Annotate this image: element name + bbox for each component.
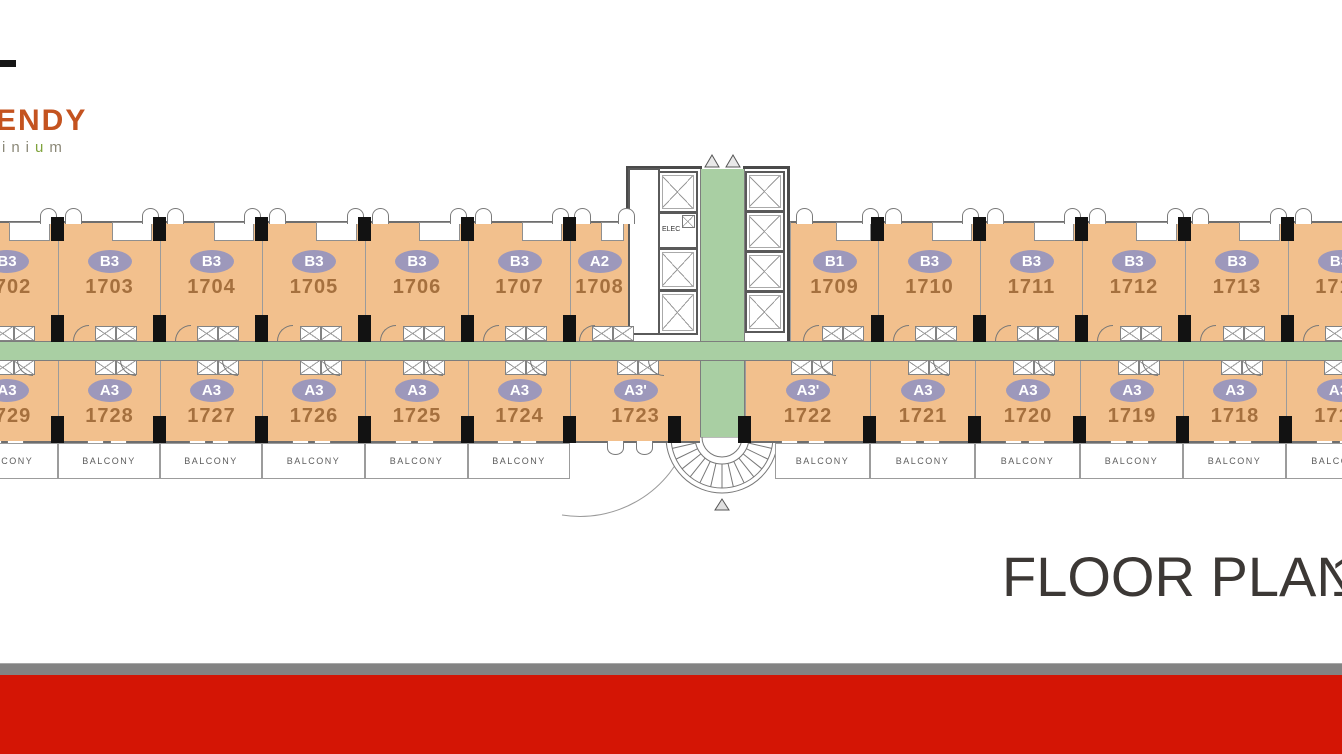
balcony-door-icon xyxy=(607,441,624,455)
shaft-pair xyxy=(1325,326,1342,341)
shaft-icon xyxy=(682,215,695,228)
window-notch-icon xyxy=(1136,222,1177,241)
balcony-cell: BALCONY xyxy=(365,443,468,479)
unit-number: 1706 xyxy=(366,276,468,299)
column-marker xyxy=(1176,416,1189,443)
shaft-icon xyxy=(791,360,812,375)
door-arc-icon xyxy=(372,208,389,224)
balcony-cell: BALCONY xyxy=(262,443,365,479)
door-arc-icon xyxy=(803,325,819,341)
unit-type-badge: A3 xyxy=(292,379,336,402)
unit-1702: B31702 xyxy=(0,221,58,341)
door-arc-icon xyxy=(618,208,635,224)
shaft-icon xyxy=(526,326,547,341)
unit-type-badge: B3 xyxy=(190,250,234,273)
balcony-label: BALCONY xyxy=(1208,456,1262,466)
door-arc-icon xyxy=(1200,325,1216,341)
unit-number: 1708 xyxy=(571,276,628,299)
window-notch-icon xyxy=(1239,222,1280,241)
shaft-icon xyxy=(0,360,14,375)
column-marker xyxy=(1075,217,1088,241)
footer-red-bar xyxy=(0,675,1342,754)
unit-number: 1724 xyxy=(469,405,570,428)
door-arc-icon xyxy=(65,208,82,224)
unit-type-badge: A3' xyxy=(614,379,658,402)
shaft-icon xyxy=(0,326,14,341)
elevator-icon xyxy=(658,171,698,213)
shaft-pair xyxy=(1324,360,1342,375)
shaft-icon xyxy=(95,326,116,341)
elevator-icon xyxy=(658,290,698,335)
shaft-pair xyxy=(915,326,957,341)
balcony-label: BALCONY xyxy=(1001,456,1055,466)
unit-type-badge: B3 xyxy=(1318,250,1342,273)
logo-dash-icon xyxy=(0,60,16,67)
logo-subtitle-part: m xyxy=(49,139,68,156)
unit-1713: B31713 xyxy=(1185,221,1288,341)
unit-number: 1722 xyxy=(746,405,870,428)
shaft-pair xyxy=(1017,326,1059,341)
shaft-pair xyxy=(95,326,137,341)
unit-number: 1710 xyxy=(879,276,980,299)
window-notch-icon xyxy=(112,222,152,241)
unit-number: 1712 xyxy=(1083,276,1185,299)
door-arc-icon xyxy=(175,325,191,341)
balcony-label: BALCONY xyxy=(82,456,136,466)
column-marker xyxy=(153,315,166,342)
unit-1714: B31714 xyxy=(1288,221,1342,341)
column-marker xyxy=(358,315,371,342)
elevator-icon xyxy=(745,251,785,292)
window-notch-icon xyxy=(836,222,871,241)
unit-1710: B31710 xyxy=(878,221,980,341)
column-marker xyxy=(871,315,884,342)
shaft-icon xyxy=(1120,326,1141,341)
column-marker xyxy=(51,416,64,443)
core-wall xyxy=(743,166,790,169)
shaft-pair xyxy=(505,326,547,341)
unit-1708: A21708 xyxy=(570,221,628,341)
column-marker xyxy=(871,217,884,241)
shaft-icon xyxy=(1221,360,1242,375)
shaft-icon xyxy=(300,326,321,341)
unit-number: 1719 xyxy=(1081,405,1183,428)
balcony-label: BALCONY xyxy=(1311,456,1342,466)
elevator-icon xyxy=(658,248,698,291)
shaft-icon xyxy=(1118,360,1139,375)
shaft-icon xyxy=(613,326,634,341)
column-marker xyxy=(358,217,371,241)
unit-type-badge: A3 xyxy=(1006,379,1050,402)
logo-subtitle-accent: u xyxy=(35,139,49,156)
unit-1726: A31726 xyxy=(262,361,365,443)
column-marker xyxy=(255,416,268,443)
unit-1725: A31725 xyxy=(365,361,468,443)
unit-type-badge: B3 xyxy=(0,250,29,273)
column-marker xyxy=(973,217,986,241)
unit-number: 1728 xyxy=(59,405,160,428)
door-arc-icon xyxy=(483,325,499,341)
shaft-icon xyxy=(617,360,638,375)
column-marker xyxy=(153,416,166,443)
shaft-icon xyxy=(1244,326,1265,341)
unit-number: 1702 xyxy=(0,276,58,299)
balcony-cell: BALCONY xyxy=(0,443,58,479)
shaft-icon xyxy=(1038,326,1059,341)
shaft-icon xyxy=(424,326,445,341)
unit-1720: A31720 xyxy=(975,361,1080,443)
column-marker xyxy=(153,217,166,241)
unit-1724: A31724 xyxy=(468,361,570,443)
shaft-icon xyxy=(915,326,936,341)
column-marker xyxy=(461,315,474,342)
unit-1704: B31704 xyxy=(160,221,262,341)
unit-1721: A31721 xyxy=(870,361,975,443)
shaft-pair xyxy=(1223,326,1265,341)
balcony-label: BALCONY xyxy=(492,456,546,466)
door-arc-icon xyxy=(987,208,1004,224)
unit-type-badge: A3 xyxy=(0,379,29,402)
balcony-label: BALCONY xyxy=(0,456,33,466)
door-arc-icon xyxy=(574,208,591,224)
shaft-icon xyxy=(403,326,424,341)
electrical-room: ELEC xyxy=(658,212,698,249)
door-arc-icon xyxy=(1192,208,1209,224)
unit-1719: A31719 xyxy=(1080,361,1183,443)
shaft-icon xyxy=(505,326,526,341)
column-marker xyxy=(255,315,268,342)
column-marker xyxy=(51,315,64,342)
balcony-cell: BALCONY xyxy=(975,443,1080,479)
unit-1712: B31712 xyxy=(1082,221,1185,341)
balcony-label: BALCONY xyxy=(896,456,950,466)
unit-type-badge: A3 xyxy=(190,379,234,402)
shaft-icon xyxy=(95,360,116,375)
shaft-icon xyxy=(197,326,218,341)
shaft-pair xyxy=(0,326,35,341)
unit-number: 1705 xyxy=(263,276,365,299)
column-marker xyxy=(358,416,371,443)
shaft-pair xyxy=(592,326,634,341)
double-door-icon xyxy=(701,153,745,168)
balcony-label: BALCONY xyxy=(796,456,850,466)
balcony-cell: BALCONY xyxy=(160,443,262,479)
column-marker xyxy=(461,217,474,241)
window-notch-icon xyxy=(214,222,254,241)
shaft-icon xyxy=(14,326,35,341)
unit-number: 1718 xyxy=(1184,405,1286,428)
balcony-door-icon xyxy=(636,441,653,455)
unit-type-badge: B3 xyxy=(1112,250,1156,273)
marker-triangle-icon xyxy=(711,496,733,514)
unit-number: 1714 xyxy=(1289,276,1342,299)
unit-1707: B31707 xyxy=(468,221,570,341)
door-arc-icon xyxy=(995,325,1011,341)
shaft-pair xyxy=(1120,326,1162,341)
column-marker xyxy=(1075,315,1088,342)
unit-number: 1721 xyxy=(871,405,975,428)
shaft-icon xyxy=(822,326,843,341)
shaft-icon xyxy=(1223,326,1244,341)
window-notch-icon xyxy=(522,222,562,241)
unit-number: 1727 xyxy=(161,405,262,428)
column-marker xyxy=(563,416,576,443)
column-marker xyxy=(461,416,474,443)
unit-number: 1717 xyxy=(1287,405,1342,428)
shaft-pair xyxy=(197,326,239,341)
unit-number: 1726 xyxy=(263,405,365,428)
unit-1727: A31727 xyxy=(160,361,262,443)
corridor-vertical-upper xyxy=(700,169,745,341)
door-arc-icon xyxy=(380,325,396,341)
balcony-cell: BALCONY xyxy=(1080,443,1183,479)
door-arc-icon xyxy=(277,325,293,341)
unit-number: 1707 xyxy=(469,276,570,299)
door-arc-icon xyxy=(579,325,595,341)
unit-type-badge: A3 xyxy=(1213,379,1257,402)
column-marker xyxy=(863,416,876,443)
elevator-icon xyxy=(745,171,785,212)
unit-1728: A31728 xyxy=(58,361,160,443)
shaft-icon xyxy=(300,360,321,375)
column-marker xyxy=(1178,315,1191,342)
door-arc-icon xyxy=(1089,208,1106,224)
window-notch-icon xyxy=(1034,222,1074,241)
shaft-icon xyxy=(403,360,424,375)
floor-plan-page: ENDY inium ELEC xyxy=(0,0,1342,754)
window-notch-icon xyxy=(932,222,972,241)
staircase-icon xyxy=(665,437,779,499)
page-title-suffix: 1 xyxy=(1330,544,1342,609)
unit-type-badge: B3 xyxy=(1010,250,1054,273)
unit-type-badge: B3 xyxy=(1215,250,1259,273)
unit-1709: B11709 xyxy=(790,221,878,341)
unit-1722: A3'1722 xyxy=(745,361,870,443)
unit-1703: B31703 xyxy=(58,221,160,341)
column-marker xyxy=(1178,217,1191,241)
unit-type-badge: B3 xyxy=(908,250,952,273)
column-marker xyxy=(255,217,268,241)
column-marker xyxy=(968,416,981,443)
unit-type-badge: B3 xyxy=(88,250,132,273)
unit-number: 1709 xyxy=(791,276,878,299)
window-notch-icon xyxy=(601,222,625,241)
corridor-horizontal xyxy=(0,341,1342,361)
window-notch-icon xyxy=(316,222,357,241)
balcony-cell: BALCONY xyxy=(775,443,870,479)
elevator-icon xyxy=(745,211,785,252)
shaft-icon xyxy=(218,326,239,341)
column-marker xyxy=(1281,217,1294,241)
logo-wordmark: ENDY xyxy=(0,104,87,138)
door-arc-icon xyxy=(1303,325,1319,341)
unit-1717: A31717 xyxy=(1286,361,1342,443)
unit-number: 1704 xyxy=(161,276,262,299)
unit-1705: B31705 xyxy=(262,221,365,341)
unit-1706: B31706 xyxy=(365,221,468,341)
door-arc-icon xyxy=(1295,208,1312,224)
elevator-icon xyxy=(745,291,785,333)
shaft-icon xyxy=(116,326,137,341)
unit-number: 1725 xyxy=(366,405,468,428)
balcony-cell: BALCONY xyxy=(468,443,570,479)
shaft-icon xyxy=(908,360,929,375)
shaft-pair xyxy=(822,326,864,341)
unit-1729: A31729 xyxy=(0,361,58,443)
unit-number: 1711 xyxy=(981,276,1082,299)
door-arc-icon xyxy=(893,325,909,341)
door-arc-icon xyxy=(269,208,286,224)
unit-type-badge: A3 xyxy=(88,379,132,402)
door-arc-icon xyxy=(1097,325,1113,341)
unit-type-badge: A3 xyxy=(901,379,945,402)
column-marker xyxy=(973,315,986,342)
shaft-icon xyxy=(1324,360,1342,375)
column-marker xyxy=(1281,315,1294,342)
balcony-label: BALCONY xyxy=(1105,456,1159,466)
footer-gray-bar xyxy=(0,663,1342,675)
shaft-icon xyxy=(505,360,526,375)
unit-type-badge: A3' xyxy=(786,379,830,402)
shaft-icon xyxy=(1017,326,1038,341)
column-marker xyxy=(1279,416,1292,443)
door-arc-icon xyxy=(796,208,813,224)
column-marker xyxy=(1073,416,1086,443)
unit-type-badge: A3 xyxy=(498,379,542,402)
logo-subtitle: inium xyxy=(2,139,68,156)
unit-type-badge: A2 xyxy=(578,250,622,273)
door-arc-icon xyxy=(885,208,902,224)
unit-type-badge: B3 xyxy=(395,250,439,273)
door-arc-icon xyxy=(475,208,492,224)
shaft-icon xyxy=(321,326,342,341)
shaft-icon xyxy=(936,326,957,341)
unit-type-badge: A3 xyxy=(395,379,439,402)
shaft-pair xyxy=(403,326,445,341)
unit-1711: B31711 xyxy=(980,221,1082,341)
unit-number: 1703 xyxy=(59,276,160,299)
unit-number: 1729 xyxy=(0,405,58,428)
balcony-cell: BALCONY xyxy=(58,443,160,479)
unit-type-badge: A3 xyxy=(1110,379,1154,402)
balcony-cell: BALCONY xyxy=(1183,443,1286,479)
shaft-icon xyxy=(197,360,218,375)
balcony-cell: BALCONY xyxy=(870,443,975,479)
column-marker xyxy=(738,416,751,443)
shaft-icon xyxy=(1141,326,1162,341)
shaft-icon xyxy=(843,326,864,341)
unit-1718: A31718 xyxy=(1183,361,1286,443)
unit-number: 1713 xyxy=(1186,276,1288,299)
unit-number: 1720 xyxy=(976,405,1080,428)
electrical-room-label: ELEC xyxy=(662,226,680,233)
balcony-label: BALCONY xyxy=(184,456,238,466)
core-room xyxy=(628,168,660,335)
column-marker xyxy=(51,217,64,241)
page-title: FLOOR PLAN xyxy=(1002,544,1342,609)
door-arc-icon xyxy=(167,208,184,224)
unit-type-badge: B3 xyxy=(498,250,542,273)
unit-type-badge: B1 xyxy=(813,250,857,273)
column-marker xyxy=(563,217,576,241)
logo-subtitle-part: ini xyxy=(2,139,35,156)
balcony-cell: BALCONY xyxy=(1286,443,1342,479)
shaft-icon xyxy=(1325,326,1342,341)
column-marker xyxy=(668,416,681,443)
door-arc-icon xyxy=(73,325,89,341)
unit-type-badge: B3 xyxy=(292,250,336,273)
balcony-label: BALCONY xyxy=(390,456,444,466)
shaft-icon xyxy=(1013,360,1034,375)
unit-type-badge: A3 xyxy=(1317,379,1342,402)
shaft-pair xyxy=(300,326,342,341)
window-notch-icon xyxy=(9,222,50,241)
balcony-label: BALCONY xyxy=(287,456,341,466)
column-marker xyxy=(563,315,576,342)
window-notch-icon xyxy=(419,222,460,241)
